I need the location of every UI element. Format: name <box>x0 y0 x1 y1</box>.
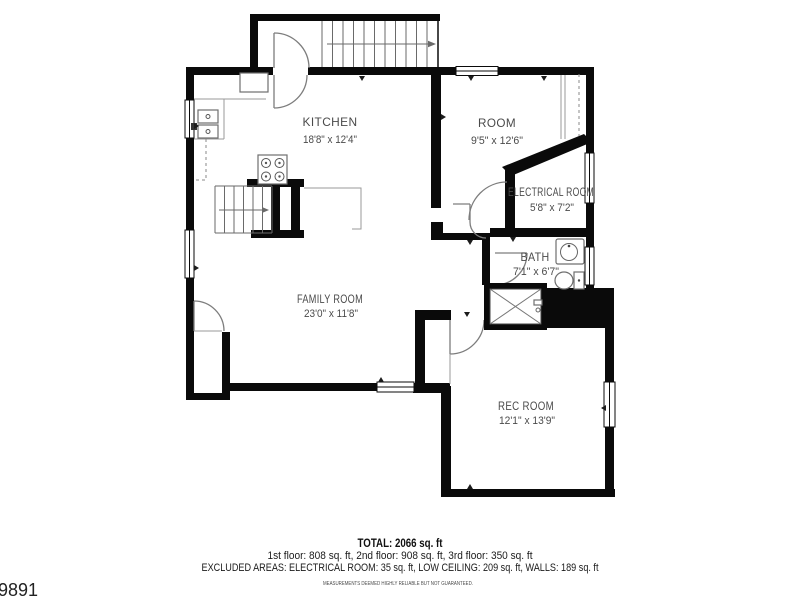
room-closet <box>561 74 579 139</box>
door-stair-landing <box>274 33 309 108</box>
bath-sink-icon <box>556 239 584 264</box>
door-rec-room <box>450 320 484 384</box>
stairs-up-arrow-icon <box>428 41 436 47</box>
window-rec-room <box>604 382 615 427</box>
shower-icon <box>484 283 547 330</box>
window-top <box>456 67 498 76</box>
floor-plan-page: KITCHEN 18'8" x 12'4" ROOM 9'5" x 12'6" … <box>0 0 800 600</box>
window-right-bath <box>585 247 594 285</box>
room-label-kitchen: KITCHEN <box>303 115 358 129</box>
total-area-text: TOTAL: 2066 sq. ft <box>358 536 443 550</box>
floor-areas-text: 1st floor: 808 sq. ft, 2nd floor: 908 sq… <box>268 550 533 562</box>
excluded-areas-text: EXCLUDED AREAS: ELECTRICAL ROOM: 35 sq. … <box>202 562 599 574</box>
room-label-room: ROOM <box>478 116 516 130</box>
dishwasher-outline <box>194 139 206 180</box>
window-left-family <box>185 230 194 278</box>
room-dims-bath: 7'1" x 6'7" <box>513 266 559 278</box>
stairs-upper <box>322 21 436 67</box>
door-closet <box>194 301 224 331</box>
kitchen-fixtures <box>191 73 287 184</box>
toilet-icon <box>555 272 584 289</box>
room-dims-electrical: 5'8" x 7'2" <box>530 202 574 214</box>
room-dims-kitchen: 18'8" x 12'4" <box>303 134 357 146</box>
disclaimer-text: MEASUREMENTS DEEMED HIGHLY RELIABLE BUT … <box>323 581 473 587</box>
window-left-kitchen <box>185 100 194 138</box>
room-label-rec: REC ROOM <box>498 399 554 413</box>
area-summary: TOTAL: 2066 sq. ft 1st floor: 808 sq. ft… <box>202 536 599 587</box>
floor-plan-drawing: KITCHEN 18'8" x 12'4" ROOM 9'5" x 12'6" … <box>0 0 800 600</box>
dimension-ticks <box>194 76 606 489</box>
counter-edge <box>304 188 361 229</box>
room-label-bath: BATH <box>521 250 550 264</box>
room-label-family: FAMILY ROOM <box>297 292 363 306</box>
listing-id: 5389891 <box>0 580 38 600</box>
windows <box>185 67 615 428</box>
room-labels: KITCHEN 18'8" x 12'4" ROOM 9'5" x 12'6" … <box>297 115 594 427</box>
room-label-electrical: ELECTRICAL ROOM <box>508 185 594 199</box>
room-dims-family: 23'0" x 11'8" <box>304 308 358 320</box>
stairs-lower <box>215 186 272 233</box>
fridge-icon <box>240 73 268 92</box>
stove-icon <box>258 155 287 184</box>
window-family-bottom <box>377 382 414 392</box>
room-dims-rec: 12'1" x 13'9" <box>499 415 555 427</box>
stairs-down-arrow-icon <box>262 207 269 213</box>
room-dims-room: 9'5" x 12'6" <box>471 135 523 147</box>
